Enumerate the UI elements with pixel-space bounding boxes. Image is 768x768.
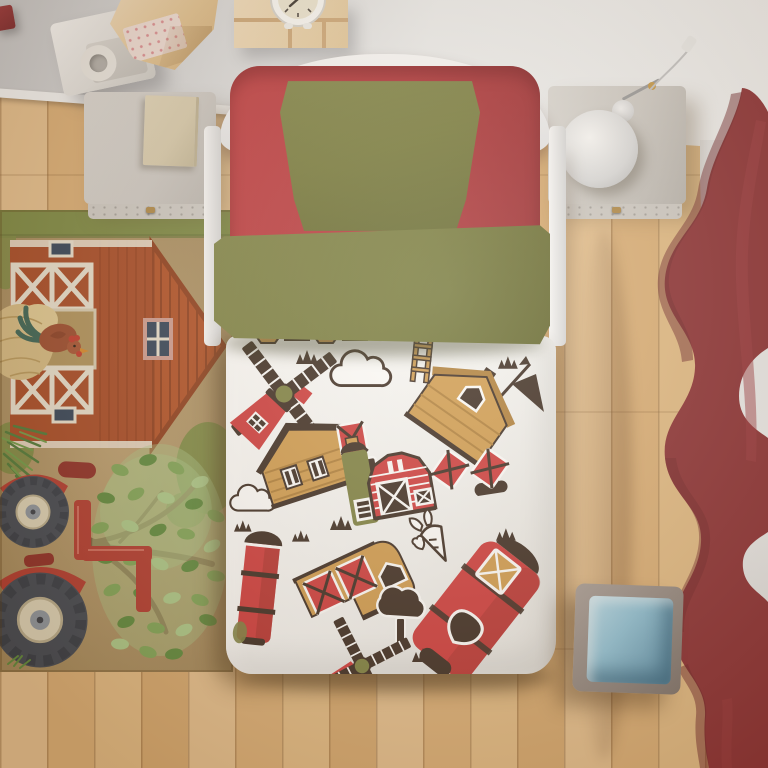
farm-duvet bbox=[226, 336, 556, 674]
cube-stool bbox=[572, 583, 684, 695]
alarm-clock bbox=[268, 0, 328, 30]
olive-blanket bbox=[214, 224, 550, 348]
drawer-knob bbox=[146, 207, 155, 213]
cube-blue-lining bbox=[586, 596, 673, 685]
tractor-wheel bbox=[0, 476, 69, 548]
olive-pillow bbox=[280, 78, 480, 234]
red-barn-with-silo bbox=[338, 425, 436, 526]
barn-small-window bbox=[50, 242, 72, 256]
bedroom-scene bbox=[0, 0, 768, 768]
carrot-outline bbox=[402, 507, 456, 570]
book-on-nightstand bbox=[143, 95, 199, 167]
red-silo bbox=[232, 529, 284, 647]
duvet-pattern bbox=[226, 336, 556, 674]
farm-rug bbox=[0, 210, 233, 672]
bed-rail-right bbox=[549, 126, 566, 346]
barn-gable-window bbox=[143, 318, 173, 360]
